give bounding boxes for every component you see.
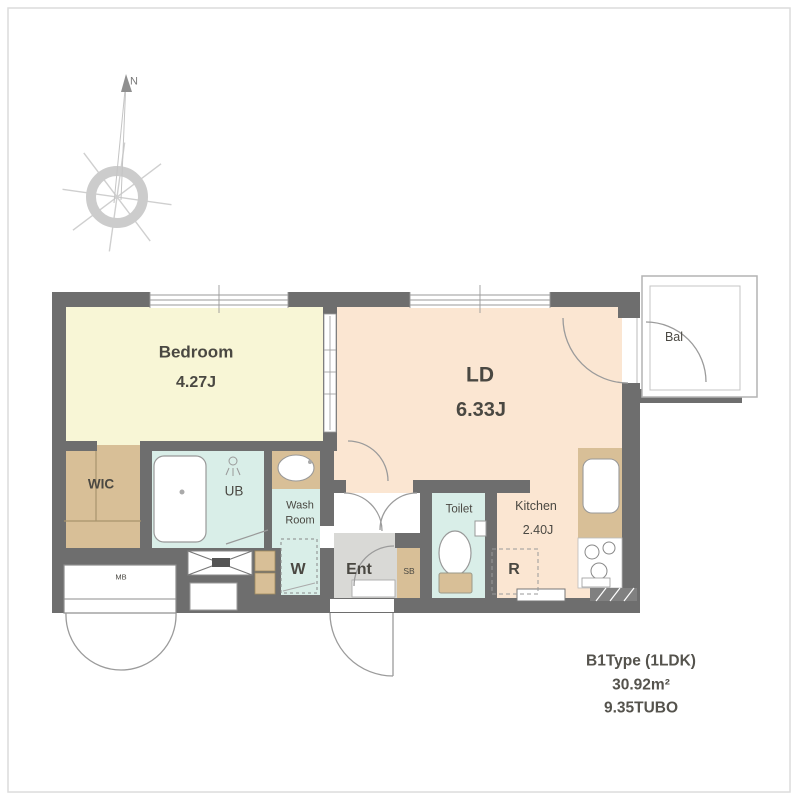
washer-label: W	[290, 562, 305, 578]
kitchen-area-label: 2.40J	[523, 524, 554, 537]
paper-holder	[475, 521, 486, 536]
wall-inset-box	[190, 583, 237, 610]
unit-bath-label: UB	[225, 484, 244, 498]
kitchen-label: Kitchen	[515, 500, 557, 513]
washroom-label-line1: Wash	[286, 501, 314, 512]
meter-box-door-left-arc	[66, 613, 121, 670]
washbasin	[278, 455, 314, 481]
refrigerator-label: R	[508, 562, 520, 578]
ld-area-label: 6.33J	[456, 400, 506, 420]
kitchen-sink	[583, 459, 619, 513]
balcony	[642, 276, 757, 397]
bedroom-area-label: 4.27J	[176, 375, 216, 391]
wic-label: WIC	[88, 477, 114, 491]
meter-box-door-right-arc	[121, 613, 176, 670]
floorplan-drawing	[0, 0, 798, 800]
toilet-label: Toilet	[446, 504, 473, 516]
front-door-arc	[330, 613, 393, 676]
plan-tsubo-label: 9.35TUBO	[604, 700, 678, 716]
compass-icon	[55, 74, 179, 259]
shoe-box-label: SB	[403, 567, 414, 576]
cabinet	[255, 551, 275, 571]
front-door-opening	[330, 599, 394, 612]
toilet-tank	[439, 573, 472, 593]
balcony-label: Bal	[665, 331, 683, 344]
floorplan-page: Bedroom 4.27J LD 6.33J Bal WIC UB Wash R…	[0, 0, 798, 800]
sliding-partition	[324, 314, 336, 432]
entrance-label: Ent	[346, 562, 372, 578]
wall-vent	[517, 589, 565, 601]
grill-slot	[582, 578, 610, 587]
north-label: N	[130, 77, 138, 88]
washroom-label-line2: Room	[285, 516, 314, 527]
vent-box	[188, 551, 252, 575]
plan-sqm-label: 30.92m²	[612, 677, 670, 693]
toilet-bowl	[439, 531, 471, 575]
meter-box-label: MB	[115, 573, 126, 581]
entry-step	[352, 580, 395, 597]
bedroom-label: Bedroom	[159, 344, 234, 361]
ld-label: LD	[466, 365, 494, 386]
wic-floor	[64, 445, 145, 557]
cabinet	[255, 573, 275, 594]
pipe-space	[590, 588, 637, 601]
bathtub	[154, 456, 206, 542]
washroom-door-opening	[320, 526, 334, 548]
plan-type-label: B1Type (1LDK)	[586, 653, 696, 669]
